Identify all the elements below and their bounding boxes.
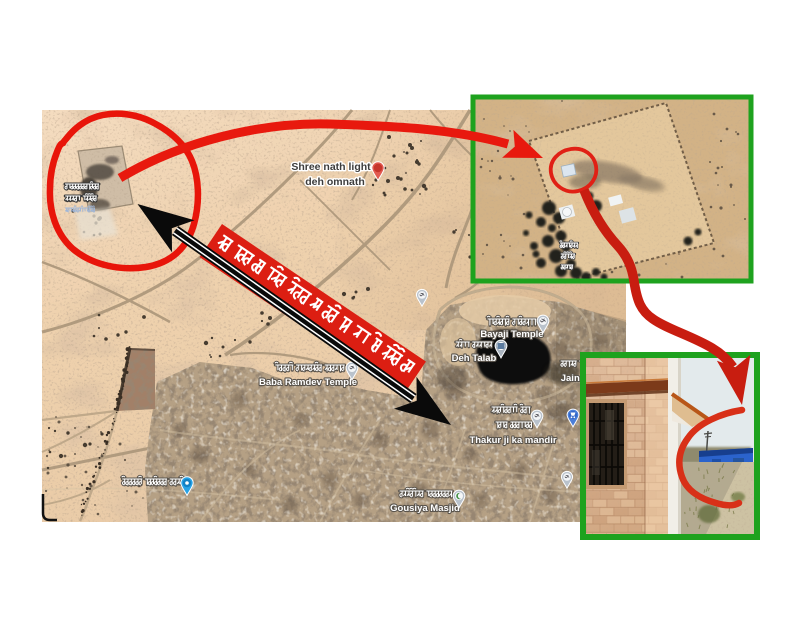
svg-text:deh omnath: deh omnath: [305, 176, 365, 188]
svg-text:Thakur ji ka mandir: Thakur ji ka mandir: [469, 435, 556, 446]
svg-text:Bayaji Temple: Bayaji Temple: [480, 329, 543, 340]
svg-text:Baba Ramdev Temple: Baba Ramdev Temple: [259, 377, 357, 388]
svg-text:Deh Talab: Deh Talab: [452, 353, 497, 364]
svg-text:Shree nath light: Shree nath light: [291, 161, 371, 173]
svg-text:Gousiya Masjid: Gousiya Masjid: [390, 503, 460, 514]
